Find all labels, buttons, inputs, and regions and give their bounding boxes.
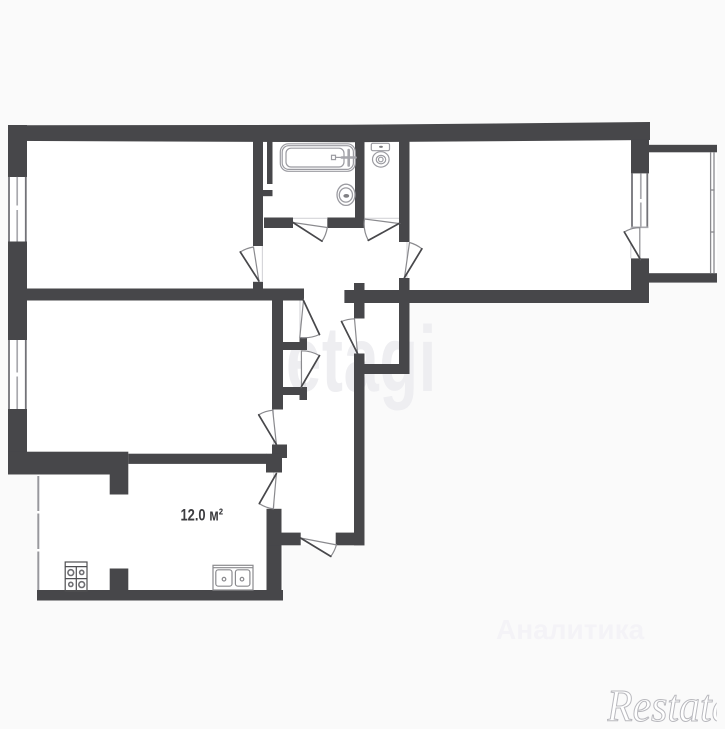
svg-text:Аналитика: Аналитика bbox=[496, 614, 645, 645]
svg-text:12.0 м²: 12.0 м² bbox=[181, 506, 224, 525]
